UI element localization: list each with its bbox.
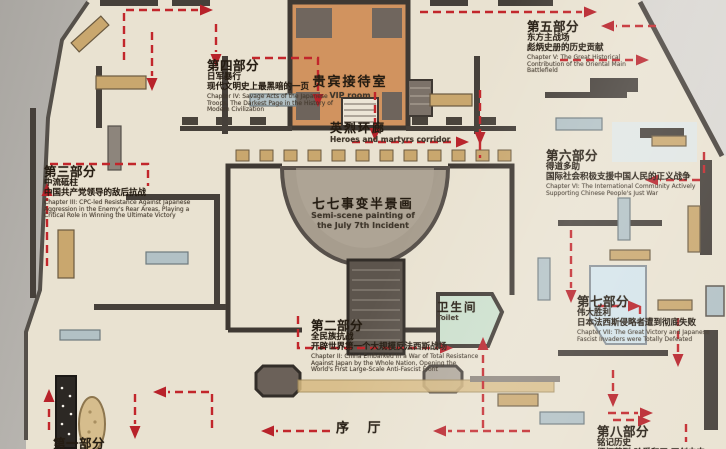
chapter7-line: 日本法西斯侵略者遭到彻底失败 [577,319,726,329]
chapter5-english: Chapter V: The Great Historical Contribu… [527,55,657,75]
chapter8-label: 第八部分 铭记历史 缅怀英烈 珍爱和平 开创未来 [597,425,722,449]
corridor-name-en: Heroes and martyrs corridor [330,136,450,145]
chapter4-label: 第四部分 日军暴行 现代文明史上最黑暗的一页 Chapter IV: Savag… [207,59,335,114]
chapter3-line: 中国共产党领导的敌后抗战 [44,189,202,199]
octagon-column-dark [256,366,300,396]
chapter2-label: 第二部分 全民族抗战 开辟世界第一个大规模反法西斯战场 Chapter II: … [311,319,479,374]
panorama-name-zh: 七七事变半景画 [296,197,430,211]
lobby-label: 序 厅 [336,422,388,437]
chapter3-label: 第三部分 中流砥柱 中国共产党领导的敌后抗战 Chapter III: CPC-… [44,165,202,220]
chapter5-line: 彪炳史册的历史贡献 [527,44,657,54]
chapter7-english: Chapter VII: The Great Victory and Japan… [577,330,726,343]
toilet-name-zh: 卫生间 [437,301,478,314]
panorama-name-en1: Semi-scene painting of [296,211,430,220]
chapter7-label: 第七部分 伟大胜利 日本法西斯侵略者遭到彻底失败 Chapter VII: Th… [577,295,726,343]
heroes-corridor-label: 英烈环廊 Heroes and martyrs corridor [330,122,450,144]
chapter4-line: 现代文明史上最黑暗的一页 [207,83,335,93]
corridor-name-zh: 英烈环廊 [330,122,450,136]
museum-floor-plan-photo: 贵宾接待室 VIP room 英烈环廊 Heroes and martyrs c… [0,0,726,449]
chapter5-label: 第五部分 东方主战场 彪炳史册的历史贡献 Chapter V: The Grea… [527,20,657,75]
chapter1-label: 第一部分 [53,437,143,449]
chapter4-english: Chapter IV: Savage Acts of the Japanese … [207,94,335,114]
panorama-label: 七七事变半景画 Semi-scene painting of the July … [296,197,430,230]
panorama-name-en2: the July 7th Incident [296,221,430,230]
chapter3-english: Chapter III: CPC-led Resistance Against … [44,200,202,220]
chapter2-line: 开辟世界第一个大规模反法西斯战场 [311,343,479,353]
chapter2-english: Chapter II: China Embarked In a War of T… [311,354,479,374]
chapter1-title: 第一部分 [53,437,143,449]
chapter6-label: 第六部分 得道多助 国际社会积极支援中国人民的正义战争 Chapter VI: … [546,149,726,197]
chapter6-line: 国际社会积极支援中国人民的正义战争 [546,173,726,183]
chapter6-english: Chapter VI: The International Community … [546,184,726,197]
